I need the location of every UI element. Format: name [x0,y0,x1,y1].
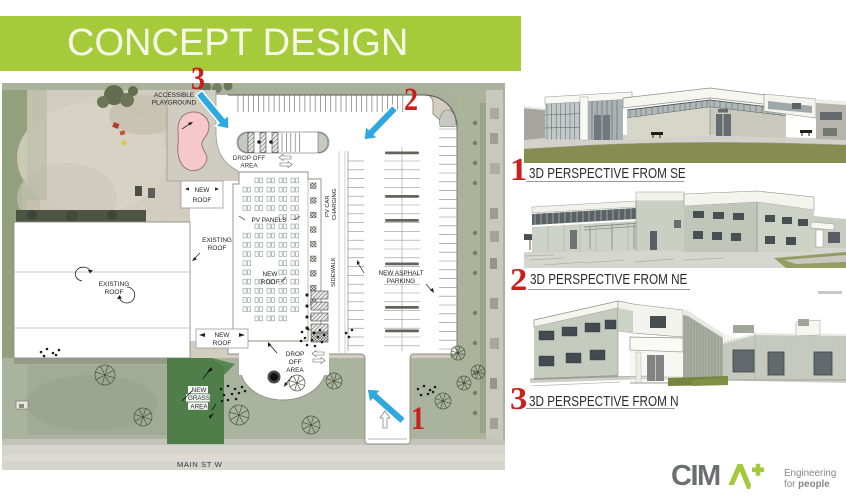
svg-text:NEW: NEW [263,271,279,278]
svg-text:ROOF: ROOF [261,279,280,286]
svg-text:ROOF: ROOF [104,289,123,296]
svg-text:NEW: NEW [195,187,211,194]
svg-text:NEW: NEW [215,332,231,339]
svg-text:SIDEWALK: SIDEWALK [331,257,337,287]
svg-text:CIM: CIM [671,463,720,490]
svg-text:EXISTING: EXISTING [202,237,232,244]
svg-text:GRASS: GRASS [188,395,210,402]
svg-text:ACCESSIBLE: ACCESSIBLE [154,92,194,99]
svg-text:MAIN ST W: MAIN ST W [177,460,223,469]
svg-text:EXISTING: EXISTING [99,281,130,288]
svg-text:for people: for people [784,479,830,490]
svg-text:PV PANELS: PV PANELS [251,217,286,224]
svg-text:NEW ASPHALT: NEW ASPHALT [379,270,424,277]
svg-text:AREA: AREA [240,163,258,170]
svg-text:AREA: AREA [286,367,304,374]
svg-text:NEW: NEW [192,387,207,394]
svg-text:PLAYGROUND: PLAYGROUND [152,100,197,107]
svg-text:PV CAR: PV CAR [325,195,331,217]
svg-text:ROOF: ROOF [193,197,212,204]
svg-text:Engineering: Engineering [784,468,836,479]
svg-text:ROOF: ROOF [213,340,232,347]
svg-text:PARKING: PARKING [387,278,415,285]
svg-text:CHARGING: CHARGING [332,188,338,220]
svg-text:AREA: AREA [190,403,208,410]
svg-text:ROOF: ROOF [208,245,227,252]
svg-text:DROP OFF: DROP OFF [233,155,266,162]
svg-text:DROP: DROP [286,351,304,358]
svg-text:OFF: OFF [289,359,302,366]
